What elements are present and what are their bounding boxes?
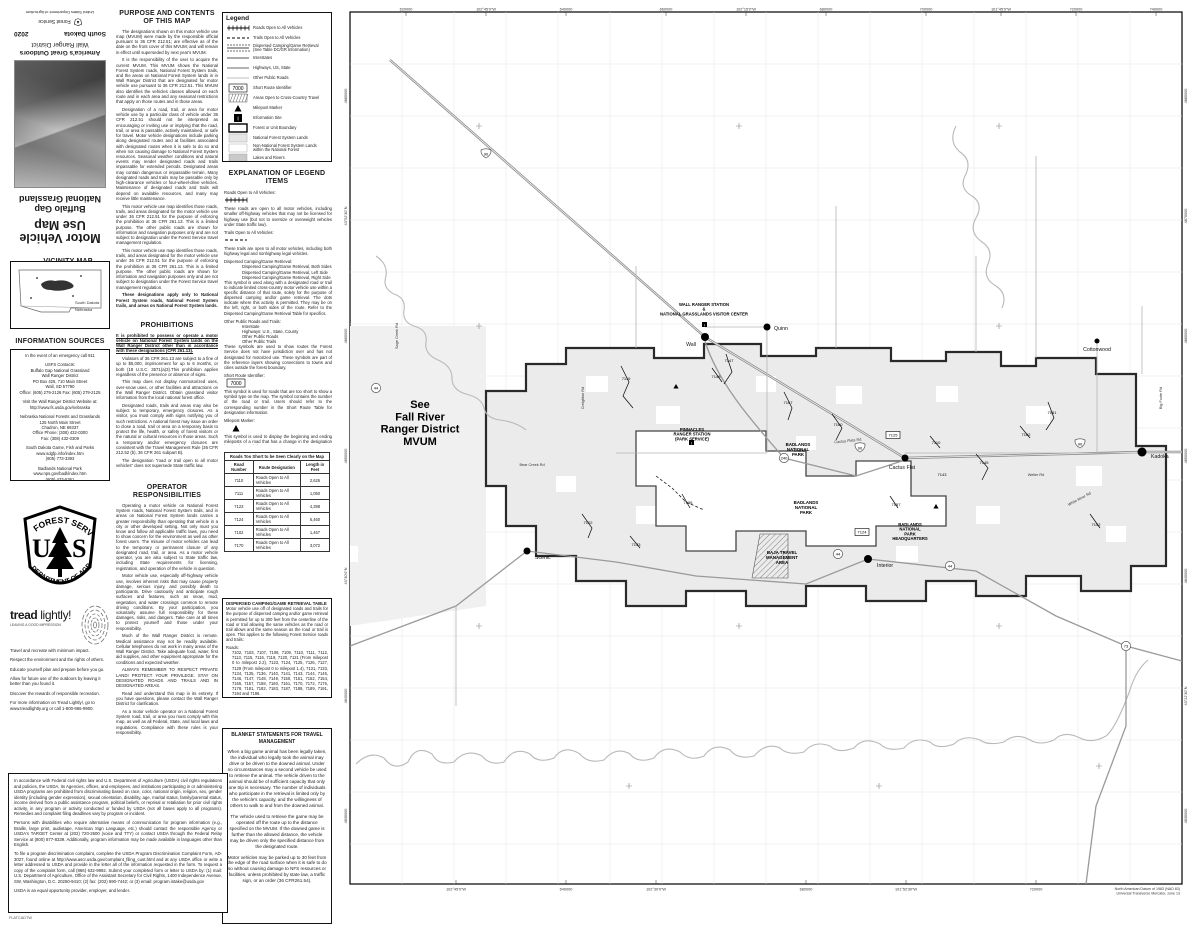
svg-text:U: U <box>32 534 51 563</box>
usda-paragraph: Persons with disabilities who require al… <box>14 820 222 848</box>
purpose-paragraph: It is the responsibility of the user to … <box>116 57 218 104</box>
short-routes-cell: 7170 <box>225 539 254 552</box>
svg-text:Nebraska: Nebraska <box>75 307 93 312</box>
state-label: South Dakota <box>64 30 106 37</box>
operator-paragraph: Operating a motor vehicle on National Fo… <box>116 503 218 571</box>
info-source-group: Visit the Wall Ranger District Website a… <box>13 399 107 410</box>
legend-item: Areas Open to Cross-Country Travel <box>226 93 328 103</box>
short-routes-cell: 7124 <box>225 513 254 526</box>
legend-panel: Legend Roads Open to All VehiclesTrails … <box>222 12 332 162</box>
explanation-section-body: This symbol is used along with a designa… <box>224 280 332 316</box>
short-routes-column: Length in Feet <box>300 461 329 474</box>
road-number-label: 7110 <box>932 440 941 445</box>
tread-brand-light: lightly! <box>37 608 71 622</box>
legend-symbol-highway <box>226 63 250 73</box>
explanation-section-body: This symbol is used to display the begin… <box>224 434 332 445</box>
svg-text:i: i <box>237 117 238 123</box>
legend-items: Roads Open to All VehiclesTrails Open to… <box>226 23 328 162</box>
short-routes-cell: 5,460 <box>300 513 329 526</box>
prohibitions-heading: PROHIBITIONS <box>116 322 218 330</box>
usda-department-line: United States Department of Agriculture <box>12 10 108 15</box>
legend-item-label: Areas Open to Cross-Country Travel <box>253 96 319 101</box>
short-routes-cell: Roads Open to All Vehicles <box>253 513 300 526</box>
legend-symbol-road-open <box>226 23 250 33</box>
explanation-symbol <box>224 423 332 434</box>
legend-item: Dispersed Camping/Game Retrieval (See Ta… <box>226 43 328 53</box>
road-number-label: 7160 <box>834 422 844 427</box>
purpose-paragraph: Designation of a road, trail, or area fo… <box>116 107 218 201</box>
legend-item-label: Other Public Roads <box>253 76 289 81</box>
datum-note-line: North American Datum of 1983 (NAD 83) <box>1115 887 1180 891</box>
road-number-label: 7181 <box>1048 410 1058 415</box>
short-routes-cell: 7102 <box>225 526 254 539</box>
road-number-label: 7133 <box>632 542 642 547</box>
svg-text:44: 44 <box>836 552 841 557</box>
info-source-line: (605) 773-3393 <box>13 456 107 461</box>
short-routes-cell: 1,467 <box>300 526 329 539</box>
operator-paragraph: As a motor vehicle operator on a Nationa… <box>116 709 218 735</box>
short-routes-title: Roads Too Short to be Seen Clearly on th… <box>224 452 330 460</box>
operator-paragraph: Read and understand this map in its enti… <box>116 691 218 707</box>
blanket-paragraph: When a big game animal has been legally … <box>227 749 327 809</box>
town-marker[interactable] <box>701 333 709 341</box>
short-routes-cell: 2,626 <box>300 474 329 487</box>
legend-item-label: National Forest System Lands <box>253 136 308 141</box>
vicinity-map: South Dakota Nebraska <box>10 261 110 329</box>
info-source-group: Nebraska National Forests and Grasslands… <box>13 414 107 441</box>
town-marker[interactable] <box>1095 339 1100 344</box>
svg-text:680000: 680000 <box>800 888 813 892</box>
vicinity-map-graphic: South Dakota Nebraska <box>11 262 109 328</box>
svg-text:7124: 7124 <box>858 530 868 535</box>
svg-text:660000: 660000 <box>660 8 673 12</box>
explanation-body: Roads Open to All Vehicles:These roads a… <box>224 187 332 445</box>
information-sources-box: In the event of an emergency call 911USF… <box>10 349 110 481</box>
forest-service-label: Forest Service <box>38 19 70 25</box>
purpose-body: The designations shown on this motor veh… <box>116 29 218 308</box>
blanket-paragraph: Motor vehicles may be parked up to 30 fe… <box>227 855 327 885</box>
legend-item-label: Interstates <box>253 56 272 61</box>
left-column: Motor Vehicle Use Map Buffalo Gap Nation… <box>8 8 112 246</box>
purpose-heading: PURPOSE AND CONTENTS OF THIS MAP <box>116 10 218 26</box>
dcgr-roads-list: 7102, 7103, 7107, 7108, 7109, 7110, 7111… <box>226 650 328 696</box>
forest-name-line1: Buffalo Gap <box>12 203 108 213</box>
blanket-statements-box: BLANKET STATEMENTS FOR TRAVEL MANAGEMENT… <box>222 728 332 924</box>
legend-symbol-short-route: 7000 <box>224 378 248 388</box>
svg-text:640000: 640000 <box>560 8 573 12</box>
legend-item-label: Roads Open to All Vehicles <box>253 26 302 31</box>
prohibitions-paragraph: This map does not display nonmotorized u… <box>116 379 218 400</box>
legend-heading: Legend <box>226 15 328 22</box>
legend-item: National Forest System Lands <box>226 133 328 143</box>
fall-river-area <box>350 326 486 626</box>
legend-item: 7000Short Route Identifier <box>226 83 328 93</box>
highway-shield: 240 <box>779 453 788 462</box>
svg-text:90: 90 <box>1078 442 1083 447</box>
highway-shield: 73 <box>1121 641 1130 650</box>
mvum-page: Motor Vehicle Use Map Buffalo Gap Nation… <box>0 0 1198 926</box>
purpose-paragraph: The designations shown on this motor veh… <box>116 29 218 55</box>
svg-text:720000: 720000 <box>1070 8 1083 12</box>
purpose-final-bold: These designations apply only to Nationa… <box>116 292 218 308</box>
town-label: Quinn <box>774 326 788 332</box>
town-label: Interior <box>877 563 893 569</box>
explanation-section-body: These symbols are used to show routes th… <box>224 344 332 370</box>
info-source-group: In the event of an emergency call 911 <box>13 353 107 358</box>
district-label: Wall Ranger District <box>12 41 108 48</box>
forest-service-mini-shield-icon <box>74 17 82 26</box>
forest-service-shield-icon: FOREST SERVICE U S DEPARTMENT OF AGRICUL… <box>22 505 98 601</box>
explanation-symbol <box>224 195 332 206</box>
road-number-label: 7119 <box>622 376 631 381</box>
dcgr-body: Motor vehicle use off of designated road… <box>226 606 328 642</box>
legend-item-label: Trails Open to All Vehicles <box>253 36 300 41</box>
short-routes-cell: 1,050 <box>300 487 329 500</box>
svg-text:4830000: 4830000 <box>344 809 348 824</box>
short-routes-column: Route Designation <box>253 461 300 474</box>
road-name-label: 243 St <box>795 449 807 453</box>
town-label: Scenic <box>535 555 551 561</box>
tread-principle: Travel and recreate with minimum impact. <box>10 648 112 653</box>
short-routes-table: Roads Too Short to be Seen Clearly on th… <box>224 452 330 552</box>
legend-item-label: Dispersed Camping/Game Retrieval (See Ta… <box>253 44 328 53</box>
short-routes-column: Road Number <box>225 461 254 474</box>
road-number-label: 7152 <box>1092 522 1102 527</box>
road-number-label: 7147 <box>725 358 735 363</box>
svg-text:4840000: 4840000 <box>344 689 348 704</box>
short-routes-cell: 7123 <box>225 500 254 513</box>
town-label: Wall <box>686 342 696 348</box>
explanation-section-body: These trails are open to all motor vehic… <box>224 246 332 256</box>
town-label: Cactus Flat <box>889 465 916 471</box>
tread-principle: Educate yourself plan and prepare before… <box>10 667 112 672</box>
road-number-label: 7102 <box>584 520 594 525</box>
info-source-line: (605) 433-5361 <box>13 477 107 481</box>
highway-shield: 44 <box>833 549 842 558</box>
town-marker[interactable] <box>1138 448 1147 457</box>
tread-brand-bold: tread <box>10 608 37 622</box>
road-name-label: Bear Creek Rd <box>519 463 544 467</box>
highway-shield: 44 <box>371 383 380 392</box>
middle-column: PURPOSE AND CONTENTS OF THIS MAP The des… <box>116 10 218 741</box>
svg-text:43°22'30"N: 43°22'30"N <box>1184 686 1188 705</box>
cover-block-rotated: Motor Vehicle Use Map Buffalo Gap Nation… <box>8 8 112 246</box>
svg-text:7125: 7125 <box>889 433 899 438</box>
road-number-label: 7162 <box>1022 432 1032 437</box>
svg-text:4860000: 4860000 <box>1184 329 1188 344</box>
operator-paragraph: ALWAYS REMEMBER TO RESPECT PRIVATE LAND!… <box>116 667 218 688</box>
svg-text:4850000: 4850000 <box>1184 449 1188 464</box>
blanket-paragraph: The vehicle used to retrieve the game ma… <box>227 814 327 850</box>
svg-text:73: 73 <box>1124 644 1129 649</box>
operator-paragraph: Much of the Wall Ranger District is remo… <box>116 633 218 664</box>
prohibitions-lead: It is prohibited to possess or operate a… <box>116 333 218 354</box>
svg-text:44: 44 <box>374 386 379 391</box>
svg-text:90: 90 <box>484 152 489 157</box>
legend-item: Lakes and Rivers <box>226 153 328 162</box>
short-routes-cell: Roads Open to All Vehicles <box>253 487 300 500</box>
prohibitions-paragraph: Designated roads, trails and areas may a… <box>116 403 218 455</box>
info-source-line: South Dakota Game, Fish and Parks <box>13 445 107 450</box>
map-title-line1: Motor Vehicle <box>12 231 108 244</box>
information-sources-heading: INFORMATION SOURCES <box>8 338 112 346</box>
explanation-section-body: These roads are open to all motor vehicl… <box>224 206 332 227</box>
legend-item-label: Forest or Unit Boundary <box>253 126 296 131</box>
svg-text:740000: 740000 <box>1150 8 1163 12</box>
info-source-line: Office: (605) 279-2126 Fax: (605) 279-21… <box>13 390 107 395</box>
short-routes-cell: Roads Open to All Vehicles <box>253 474 300 487</box>
short-routes-row: 7123Roads Open to All Vehicles4,398 <box>225 500 330 513</box>
legend-item-label: Non-National Forest System Lands within … <box>253 144 328 153</box>
svg-text:4850000: 4850000 <box>344 449 348 464</box>
legend-symbol-info-site: i <box>226 113 250 123</box>
prohibitions-body: Violators of 36 CFR 261.13 are subject t… <box>116 356 218 468</box>
road-number-label: 7157 <box>892 502 902 507</box>
svg-text:620000: 620000 <box>400 8 413 12</box>
main-map[interactable]: i i WallQuinnCottonwoodCactus FlatScenic… <box>336 6 1192 900</box>
road-name-label: Creighton Rd <box>581 387 585 409</box>
info-source-line: Nebraska National Forests and Grasslands <box>13 414 107 419</box>
svg-text:640000: 640000 <box>560 888 573 892</box>
town-marker[interactable] <box>764 324 771 331</box>
road-number-label: 7145 <box>980 460 990 465</box>
svg-text:102°30'0"W: 102°30'0"W <box>646 888 666 892</box>
thumbprint-icon <box>78 602 112 648</box>
legend-item-label: Short Route Identifier <box>253 86 292 91</box>
svg-text:4840000: 4840000 <box>1184 569 1188 584</box>
legend-symbol-road-open <box>224 195 248 205</box>
legend-symbol-milepost <box>226 103 250 113</box>
town-label: Cottonwood <box>1083 347 1111 353</box>
legend-symbol-water <box>226 153 250 162</box>
legend-item: Other Public Roads <box>226 73 328 83</box>
short-routes-cell: 7110 <box>225 474 254 487</box>
explanation-symbol <box>224 235 332 246</box>
forest-name-line2: National Grassland <box>12 193 108 203</box>
legend-symbol-milepost <box>224 423 248 433</box>
legend-item: Forest or Unit Boundary <box>226 123 328 133</box>
short-routes-table-wrap: Roads Too Short to be Seen Clearly on th… <box>224 452 330 552</box>
town-marker[interactable] <box>902 455 909 462</box>
purpose-paragraph: This motor vehicle use map identifies th… <box>116 204 218 246</box>
svg-text:4880000: 4880000 <box>344 89 348 104</box>
short-routes-row: 7170Roads Open to All Vehicles3,072 <box>225 539 330 552</box>
forest-service-shield: FOREST SERVICE U S DEPARTMENT OF AGRICUL… <box>22 505 98 601</box>
operator-heading: OPERATOR RESPONSIBILITIES <box>116 484 218 500</box>
blanket-body: When a big game animal has been legally … <box>227 749 327 884</box>
short-routes-cell: 3,072 <box>300 539 329 552</box>
svg-text:102°45'0"W: 102°45'0"W <box>476 8 496 12</box>
tread-principles: Travel and recreate with minimum impact.… <box>10 648 112 715</box>
svg-text:43°52'30"N: 43°52'30"N <box>344 206 348 225</box>
explanation-symbol: 7000 <box>224 378 332 389</box>
short-routes-cell: Roads Open to All Vehicles <box>253 500 300 513</box>
info-source-group: USFS Contacts:Buffalo Gap National Grass… <box>13 362 107 395</box>
road-name-label: Sage Creek Rd <box>395 323 399 349</box>
svg-text:43°30'0"N: 43°30'0"N <box>344 567 348 584</box>
legend-item: Roads Open to All Vehicles <box>226 23 328 33</box>
svg-text:S: S <box>72 534 86 563</box>
legend-item: iInformation Site <box>226 113 328 123</box>
highway-shield: 44 <box>945 561 954 570</box>
legend-symbol-dcgr <box>226 43 250 53</box>
legend-symbol-trail-open <box>224 235 248 245</box>
legend-item: Milepost Marker <box>226 103 328 113</box>
short-route-box: 7125 <box>886 432 900 439</box>
road-number-label: 7148 <box>712 374 722 379</box>
info-source-line: In the event of an emergency call 911 <box>13 353 107 358</box>
svg-text:4880000: 4880000 <box>1184 89 1188 104</box>
prohibitions-paragraph: Violators of 36 CFR 261.13 are subject t… <box>116 356 218 377</box>
short-routes-row: 7110Roads Open to All Vehicles2,626 <box>225 474 330 487</box>
legend-symbol-interstate <box>226 53 250 63</box>
short-routes-cell: 7111 <box>225 487 254 500</box>
svg-text:102°45'0"W: 102°45'0"W <box>446 888 466 892</box>
tread-principle: Respect the environment and the rights o… <box>10 657 112 662</box>
datum-note: North American Datum of 1983 (NAD 83)Uni… <box>1115 887 1180 896</box>
explanation-heading: EXPLANATION OF LEGEND ITEMS <box>222 170 332 186</box>
svg-text:i: i <box>704 322 705 327</box>
svg-text:90: 90 <box>858 446 863 451</box>
legend-item: Non-National Forest System Lands within … <box>226 143 328 153</box>
legend-symbol-nfs-lands <box>226 133 250 143</box>
legend-symbol-trail-open <box>226 33 250 43</box>
info-source-line: http://www.fs.usda.gov/nebraska <box>13 405 107 410</box>
usda-paragraph: In accordance with Federal civil rights … <box>14 778 222 817</box>
svg-text:44: 44 <box>948 564 953 569</box>
svg-text:720000: 720000 <box>1030 888 1043 892</box>
road-number-label: 7167 <box>784 400 794 405</box>
road-name-label: Big Foote Rd <box>1159 387 1163 409</box>
legend-item: Highways, US, State <box>226 63 328 73</box>
svg-text:101°52'30"W: 101°52'30"W <box>895 888 917 892</box>
svg-text:4870000: 4870000 <box>1184 209 1188 224</box>
legend-item-label: Lakes and Rivers <box>253 156 285 161</box>
legend-symbol-other-road <box>226 73 250 83</box>
info-source-line: Visit the Wall Ranger District Website a… <box>13 399 107 404</box>
usda-paragraph: To file a program discrimination complai… <box>14 851 222 884</box>
legend-item-label: Information Site <box>253 116 282 121</box>
purpose-paragraph: This motor vehicle use map identifies th… <box>116 248 218 290</box>
legend-item: Interstates <box>226 53 328 63</box>
short-routes-cell: Roads Open to All Vehicles <box>253 526 300 539</box>
town-label: Kadoka <box>1151 454 1169 460</box>
map-title-line2: Use Map <box>12 218 108 231</box>
tread-principle: Discover the rewards of responsible recr… <box>10 691 112 696</box>
legend-item-label: Highways, US, State <box>253 66 291 71</box>
legend-symbol-boundary <box>226 123 250 133</box>
year-label: 2020 <box>14 30 28 37</box>
short-routes-row: 7124Roads Open to All Vehicles5,460 <box>225 513 330 526</box>
tread-lightly-logo: tread lightly! LEAVING A GOOD IMPRESSION <box>10 608 112 652</box>
legend-symbol-short-route: 7000 <box>226 83 250 93</box>
short-routes-row: 7102Roads Open to All Vehicles1,467 <box>225 526 330 539</box>
short-routes-cell: Roads Open to All Vehicles <box>253 539 300 552</box>
svg-text:240: 240 <box>781 456 788 461</box>
road-number-label: 7143 <box>938 472 948 477</box>
tread-principle: Allow for future use of the outdoors by … <box>10 676 112 687</box>
program-label: America's Great Outdoors <box>12 49 108 56</box>
info-source-group: Badlands National Parkwww.nps.gov/badl/i… <box>13 466 107 481</box>
town-marker[interactable] <box>864 555 872 563</box>
operator-paragraph: Motor vehicle use, especially off-highwa… <box>116 573 218 631</box>
usda-paragraph: USDA is an equal opportunity provider, e… <box>14 888 222 894</box>
short-routes-cell: 4,398 <box>300 500 329 513</box>
blanket-heading: BLANKET STATEMENTS FOR TRAVEL MANAGEMENT <box>227 732 327 745</box>
explanation-section-body: This symbol is used for roads that are t… <box>224 389 332 415</box>
svg-text:700000: 700000 <box>920 8 933 12</box>
cover-photo <box>14 60 106 188</box>
legend-symbol-non-nfs <box>226 143 250 153</box>
svg-text:4860000: 4860000 <box>344 329 348 344</box>
legend-item: Trails Open to All Vehicles <box>226 33 328 43</box>
info-source-group: South Dakota Game, Fish and Parkswww.sdg… <box>13 445 107 461</box>
svg-text:7000: 7000 <box>230 381 241 387</box>
svg-text:680000: 680000 <box>820 8 833 12</box>
svg-text:101°45'0"W: 101°45'0"W <box>991 8 1011 12</box>
road-number-label: 7136 <box>684 500 694 505</box>
info-source-line: Fax: (308) 432-0309 <box>13 436 107 441</box>
short-route-box: 7124 <box>855 529 869 536</box>
usda-nondiscrimination-box: In accordance with Federal civil rights … <box>8 773 228 913</box>
short-routes-row: 7111Roads Open to All Vehicles1,050 <box>225 487 330 500</box>
svg-text:7000: 7000 <box>232 86 243 92</box>
tread-principle: For more information on Tread Lightly!, … <box>10 700 112 711</box>
legend-item-label: Milepost Marker <box>253 106 282 111</box>
svg-text:4830000: 4830000 <box>1184 809 1188 824</box>
dcgr-table-box: DISPERSED CAMPING/GAME RETRIEVAL TABLE M… <box>222 598 332 698</box>
prohibitions-paragraph: The designation "road or trail open to a… <box>116 458 218 468</box>
operator-body: Operating a motor vehicle on National Fo… <box>116 503 218 735</box>
svg-text:102°15'0"W: 102°15'0"W <box>736 8 756 12</box>
legend-symbol-open-area <box>226 93 250 103</box>
datum-note-line: Universal Transverse Mercator, zone 13 <box>1116 892 1180 896</box>
town-marker[interactable] <box>524 548 531 555</box>
document-code: FLATCADTW <box>9 916 32 920</box>
road-name-label: Weller Rd <box>1028 473 1045 477</box>
svg-text:South Dakota: South Dakota <box>75 300 100 305</box>
